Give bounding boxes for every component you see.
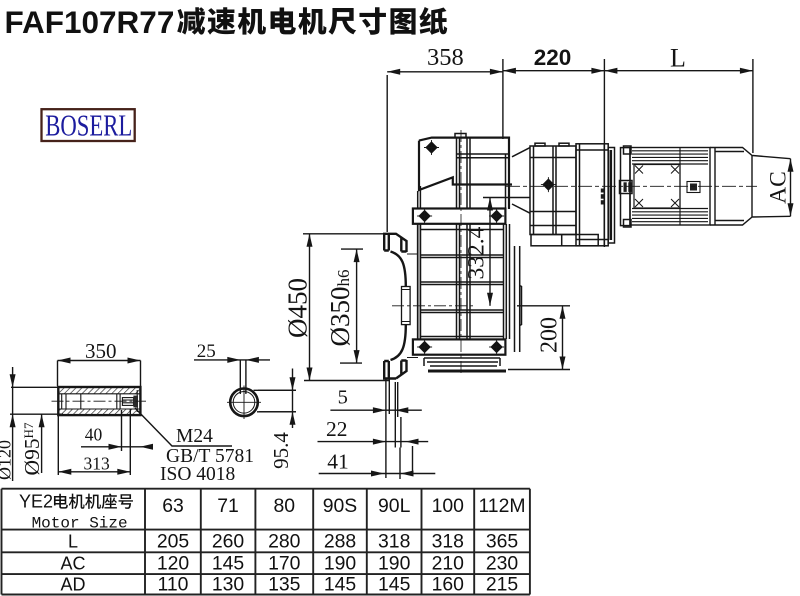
svg-text:135: 135 (268, 574, 300, 596)
svg-text:190: 190 (378, 553, 411, 575)
svg-text:71: 71 (217, 495, 239, 517)
svg-text:313: 313 (83, 454, 110, 474)
svg-text:BOSERL: BOSERL (45, 108, 132, 142)
svg-text:M24: M24 (176, 426, 213, 447)
svg-text:365: 365 (486, 531, 518, 553)
svg-text:95.4: 95.4 (269, 432, 293, 469)
svg-text:350: 350 (85, 339, 117, 363)
svg-text:288: 288 (324, 531, 356, 553)
svg-text:Motor Size: Motor Size (32, 515, 128, 533)
svg-text:YE2: YE2 (19, 492, 53, 512)
svg-text:215: 215 (486, 574, 518, 596)
svg-text:280: 280 (268, 531, 301, 553)
svg-text:Ø450: Ø450 (283, 278, 313, 338)
svg-text:AD: AD (60, 575, 85, 595)
svg-text:260: 260 (212, 531, 245, 553)
svg-text:AC: AC (766, 171, 792, 204)
svg-text:L: L (670, 44, 686, 73)
svg-text:90L: 90L (378, 495, 411, 517)
svg-text:25: 25 (197, 341, 216, 362)
svg-text:318: 318 (432, 531, 464, 553)
svg-text:130: 130 (212, 574, 245, 596)
svg-text:63: 63 (162, 495, 184, 517)
svg-text:90S: 90S (323, 495, 358, 517)
svg-text:170: 170 (268, 553, 301, 575)
svg-text:230: 230 (486, 553, 519, 575)
svg-text:145: 145 (212, 553, 244, 575)
svg-text:110: 110 (158, 574, 189, 596)
svg-text:200: 200 (537, 317, 563, 353)
svg-text:220: 220 (534, 45, 572, 70)
svg-text:205: 205 (157, 531, 189, 553)
svg-text:40: 40 (85, 425, 103, 445)
svg-text:210: 210 (432, 553, 465, 575)
svg-text:358: 358 (427, 44, 464, 71)
svg-text:145: 145 (378, 574, 410, 596)
svg-text:L: L (68, 532, 78, 552)
svg-text:AC: AC (60, 554, 85, 574)
svg-text:160: 160 (432, 574, 465, 596)
svg-text:5: 5 (338, 386, 348, 408)
svg-text:FAF107R77: FAF107R77 (5, 4, 175, 40)
svg-text:22: 22 (326, 417, 348, 441)
svg-text:318: 318 (378, 531, 410, 553)
svg-text:145: 145 (324, 574, 356, 596)
svg-text:Ø120: Ø120 (0, 440, 15, 480)
svg-text:120: 120 (157, 553, 190, 575)
svg-text:112M: 112M (478, 495, 525, 517)
svg-text:190: 190 (324, 553, 357, 575)
svg-text:ISO 4018: ISO 4018 (160, 464, 235, 485)
svg-text:80: 80 (274, 495, 296, 517)
svg-text:41: 41 (327, 450, 349, 474)
svg-text:100: 100 (432, 495, 465, 517)
